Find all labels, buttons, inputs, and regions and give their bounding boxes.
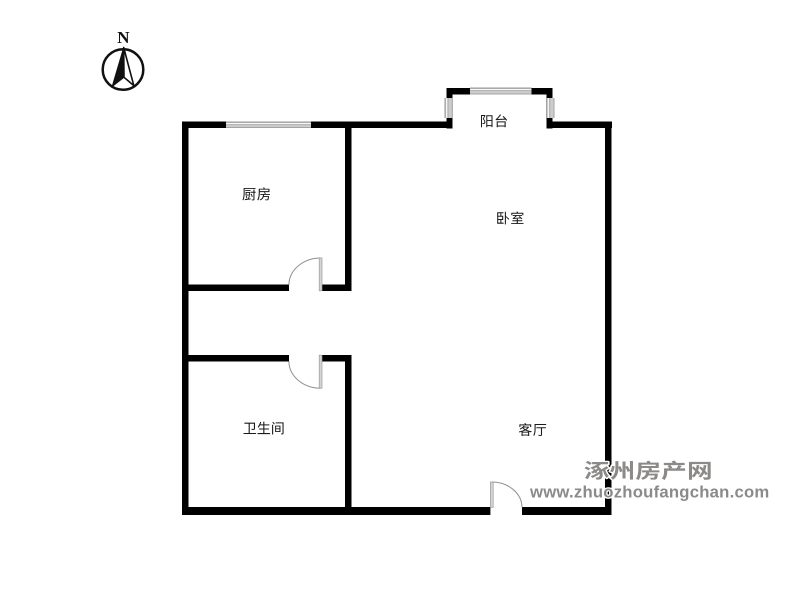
svg-text:www.zhuozhoufangchan.com: www.zhuozhoufangchan.com [529,483,769,502]
svg-text:N: N [117,28,130,47]
